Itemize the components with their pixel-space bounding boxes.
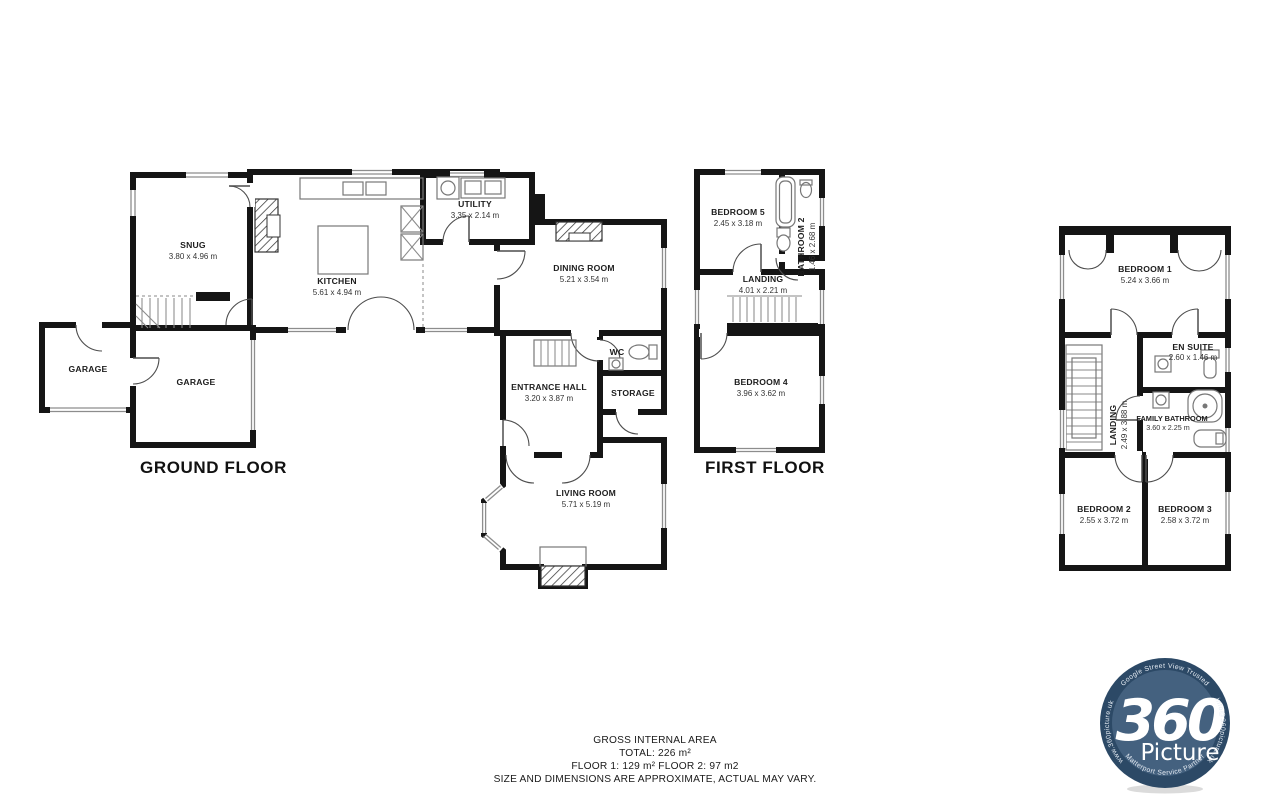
living-chimney xyxy=(541,566,585,586)
room-label-garage-right: GARAGE xyxy=(177,377,216,387)
room-label-bedroom2: BEDROOM 2 xyxy=(1077,504,1131,514)
top-wall xyxy=(1059,226,1231,235)
room-label-ensuite: EN SUITE xyxy=(1172,342,1213,352)
second-floor-plan: BEDROOM 1 5.24 x 3.66 m EN SUITE 2.60 x … xyxy=(1058,226,1232,568)
room-dims-landing2: 2.49 x 3.88 m xyxy=(1120,400,1129,449)
room-label-dining: DINING ROOM xyxy=(553,263,614,273)
room-label-utility: UTILITY xyxy=(458,199,492,209)
footer-total: TOTAL: 226 m² xyxy=(619,748,691,759)
room-dims-family-bathroom: 3.60 x 2.25 m xyxy=(1146,423,1190,432)
ground-floor-label: GROUND FLOOR xyxy=(140,458,287,477)
room-label-storage: STORAGE xyxy=(611,388,655,398)
landing-wall xyxy=(727,323,822,333)
footer-area-block: GROSS INTERNAL AREA TOTAL: 226 m² FLOOR … xyxy=(494,735,817,785)
room-dims-snug: 3.80 x 4.96 m xyxy=(169,252,218,261)
room-label-entrance: ENTRANCE HALL xyxy=(511,382,587,392)
wardrobe-stub1 xyxy=(1106,233,1114,253)
kitchen-chimney-recess xyxy=(267,215,280,237)
room-living xyxy=(484,440,664,586)
room-label-bedroom4: BEDROOM 4 xyxy=(734,377,788,387)
wardrobe-stub2 xyxy=(1170,233,1178,253)
room-label-family-bathroom: FAMILY BATHROOM xyxy=(1136,414,1207,423)
room-label-bathroom2: BATHROOM 2 xyxy=(796,217,806,276)
dining-fireplace-recess xyxy=(569,233,590,241)
wall-chunk xyxy=(529,194,545,224)
room-label-bedroom5: BEDROOM 5 xyxy=(711,207,765,217)
room-dims-bathroom2: 1.46 x 2.68 m xyxy=(808,222,817,271)
room-dims-utility: 3.35 x 2.14 m xyxy=(451,211,500,220)
room-dims-dining: 5.21 x 3.54 m xyxy=(560,275,609,284)
logo-360picture: 360 Picture www.360picture.uk Google Str… xyxy=(1100,658,1230,794)
floorplan-page: SNUG 3.80 x 4.96 m KITCHEN 5.61 x 4.94 m… xyxy=(0,0,1280,800)
room-label-kitchen: KITCHEN xyxy=(317,276,357,286)
room-dims-landing1: 4.01 x 2.21 m xyxy=(739,286,788,295)
room-label-wc: WC xyxy=(610,347,625,357)
footer-floor-areas: FLOOR 1: 129 m² FLOOR 2: 97 m2 xyxy=(571,761,738,772)
room-dims-bedroom4: 3.96 x 3.62 m xyxy=(737,389,786,398)
room-dims-entrance: 3.20 x 3.87 m xyxy=(525,394,574,403)
logo-word: Picture xyxy=(1140,740,1219,766)
footer-title: GROSS INTERNAL AREA xyxy=(593,735,716,746)
room-label-living: LIVING ROOM xyxy=(556,488,616,498)
floorplan-canvas: SNUG 3.80 x 4.96 m KITCHEN 5.61 x 4.94 m… xyxy=(0,0,1280,800)
room-label-snug: SNUG xyxy=(180,240,206,250)
room-label-landing2: LANDING xyxy=(1108,405,1118,446)
room-dims-bedroom2: 2.55 x 3.72 m xyxy=(1080,516,1129,525)
ground-floor-plan: SNUG 3.80 x 4.96 m KITCHEN 5.61 x 4.94 m… xyxy=(42,168,668,586)
room-dims-kitchen: 5.61 x 4.94 m xyxy=(313,288,362,297)
first-floor-plan: BEDROOM 5 2.45 x 3.18 m BATHROOM 2 1.46 … xyxy=(693,168,826,477)
room-dims-living: 5.71 x 5.19 m xyxy=(562,500,611,509)
room-label-bedroom3: BEDROOM 3 xyxy=(1158,504,1212,514)
room-label-landing1: LANDING xyxy=(743,274,784,284)
first-floor-label: FIRST FLOOR xyxy=(705,458,825,477)
room-dims-bedroom5: 2.45 x 3.18 m xyxy=(714,219,763,228)
room-label-bedroom1: BEDROOM 1 xyxy=(1118,264,1172,274)
room-dims-bedroom3: 2.58 x 3.72 m xyxy=(1161,516,1210,525)
room-dims-bedroom1: 5.24 x 3.66 m xyxy=(1121,276,1170,285)
room-label-garage-left: GARAGE xyxy=(69,364,108,374)
footer-disclaimer: SIZE AND DIMENSIONS ARE APPROXIMATE, ACT… xyxy=(494,774,817,785)
room-dims-ensuite: 2.60 x 1.46 m xyxy=(1169,353,1218,362)
